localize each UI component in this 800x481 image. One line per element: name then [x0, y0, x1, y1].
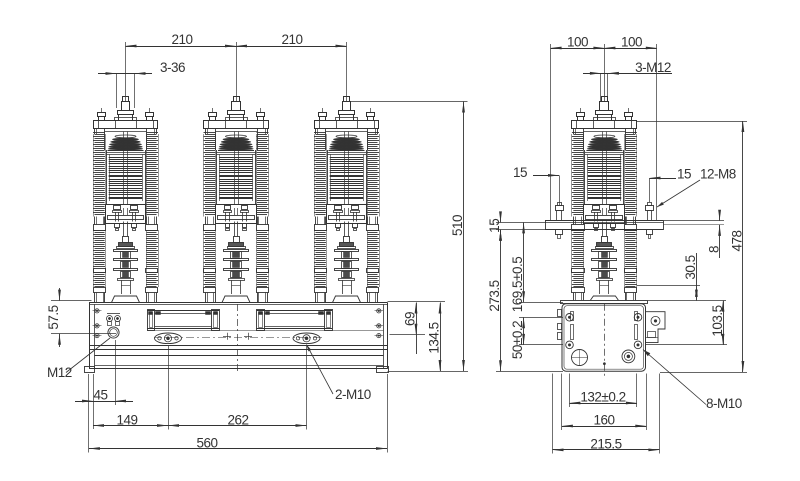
- svg-text:510: 510: [450, 215, 465, 236]
- svg-text:8: 8: [706, 246, 721, 253]
- svg-text:2-M10: 2-M10: [335, 387, 371, 402]
- svg-text:478: 478: [730, 230, 745, 251]
- svg-text:210: 210: [171, 32, 192, 47]
- svg-text:8-M10: 8-M10: [706, 396, 742, 411]
- svg-text:12-M8: 12-M8: [700, 167, 736, 182]
- svg-text:169.5±0.5: 169.5±0.5: [510, 257, 525, 312]
- svg-text:3-36: 3-36: [160, 60, 185, 75]
- svg-text:15: 15: [487, 219, 502, 233]
- svg-text:69: 69: [403, 312, 418, 326]
- svg-text:134.5: 134.5: [427, 322, 442, 353]
- svg-text:100: 100: [567, 35, 588, 50]
- svg-text:3-M12: 3-M12: [635, 60, 671, 75]
- svg-text:M12: M12: [47, 365, 72, 380]
- svg-text:132±0.2: 132±0.2: [580, 390, 625, 405]
- svg-text:560: 560: [196, 435, 217, 450]
- svg-text:15: 15: [677, 167, 691, 182]
- svg-text:273.5: 273.5: [487, 280, 502, 311]
- svg-text:103.5: 103.5: [710, 305, 725, 336]
- svg-text:160: 160: [593, 413, 614, 428]
- svg-text:149: 149: [116, 412, 137, 427]
- svg-text:50±0.2: 50±0.2: [510, 321, 525, 359]
- svg-text:210: 210: [281, 32, 302, 47]
- svg-text:15: 15: [513, 165, 527, 180]
- svg-text:215.5: 215.5: [590, 436, 621, 451]
- svg-text:100: 100: [621, 35, 642, 50]
- svg-text:57.5: 57.5: [46, 305, 61, 329]
- svg-text:262: 262: [227, 412, 248, 427]
- svg-text:45: 45: [93, 388, 107, 403]
- svg-text:30.5: 30.5: [683, 255, 698, 279]
